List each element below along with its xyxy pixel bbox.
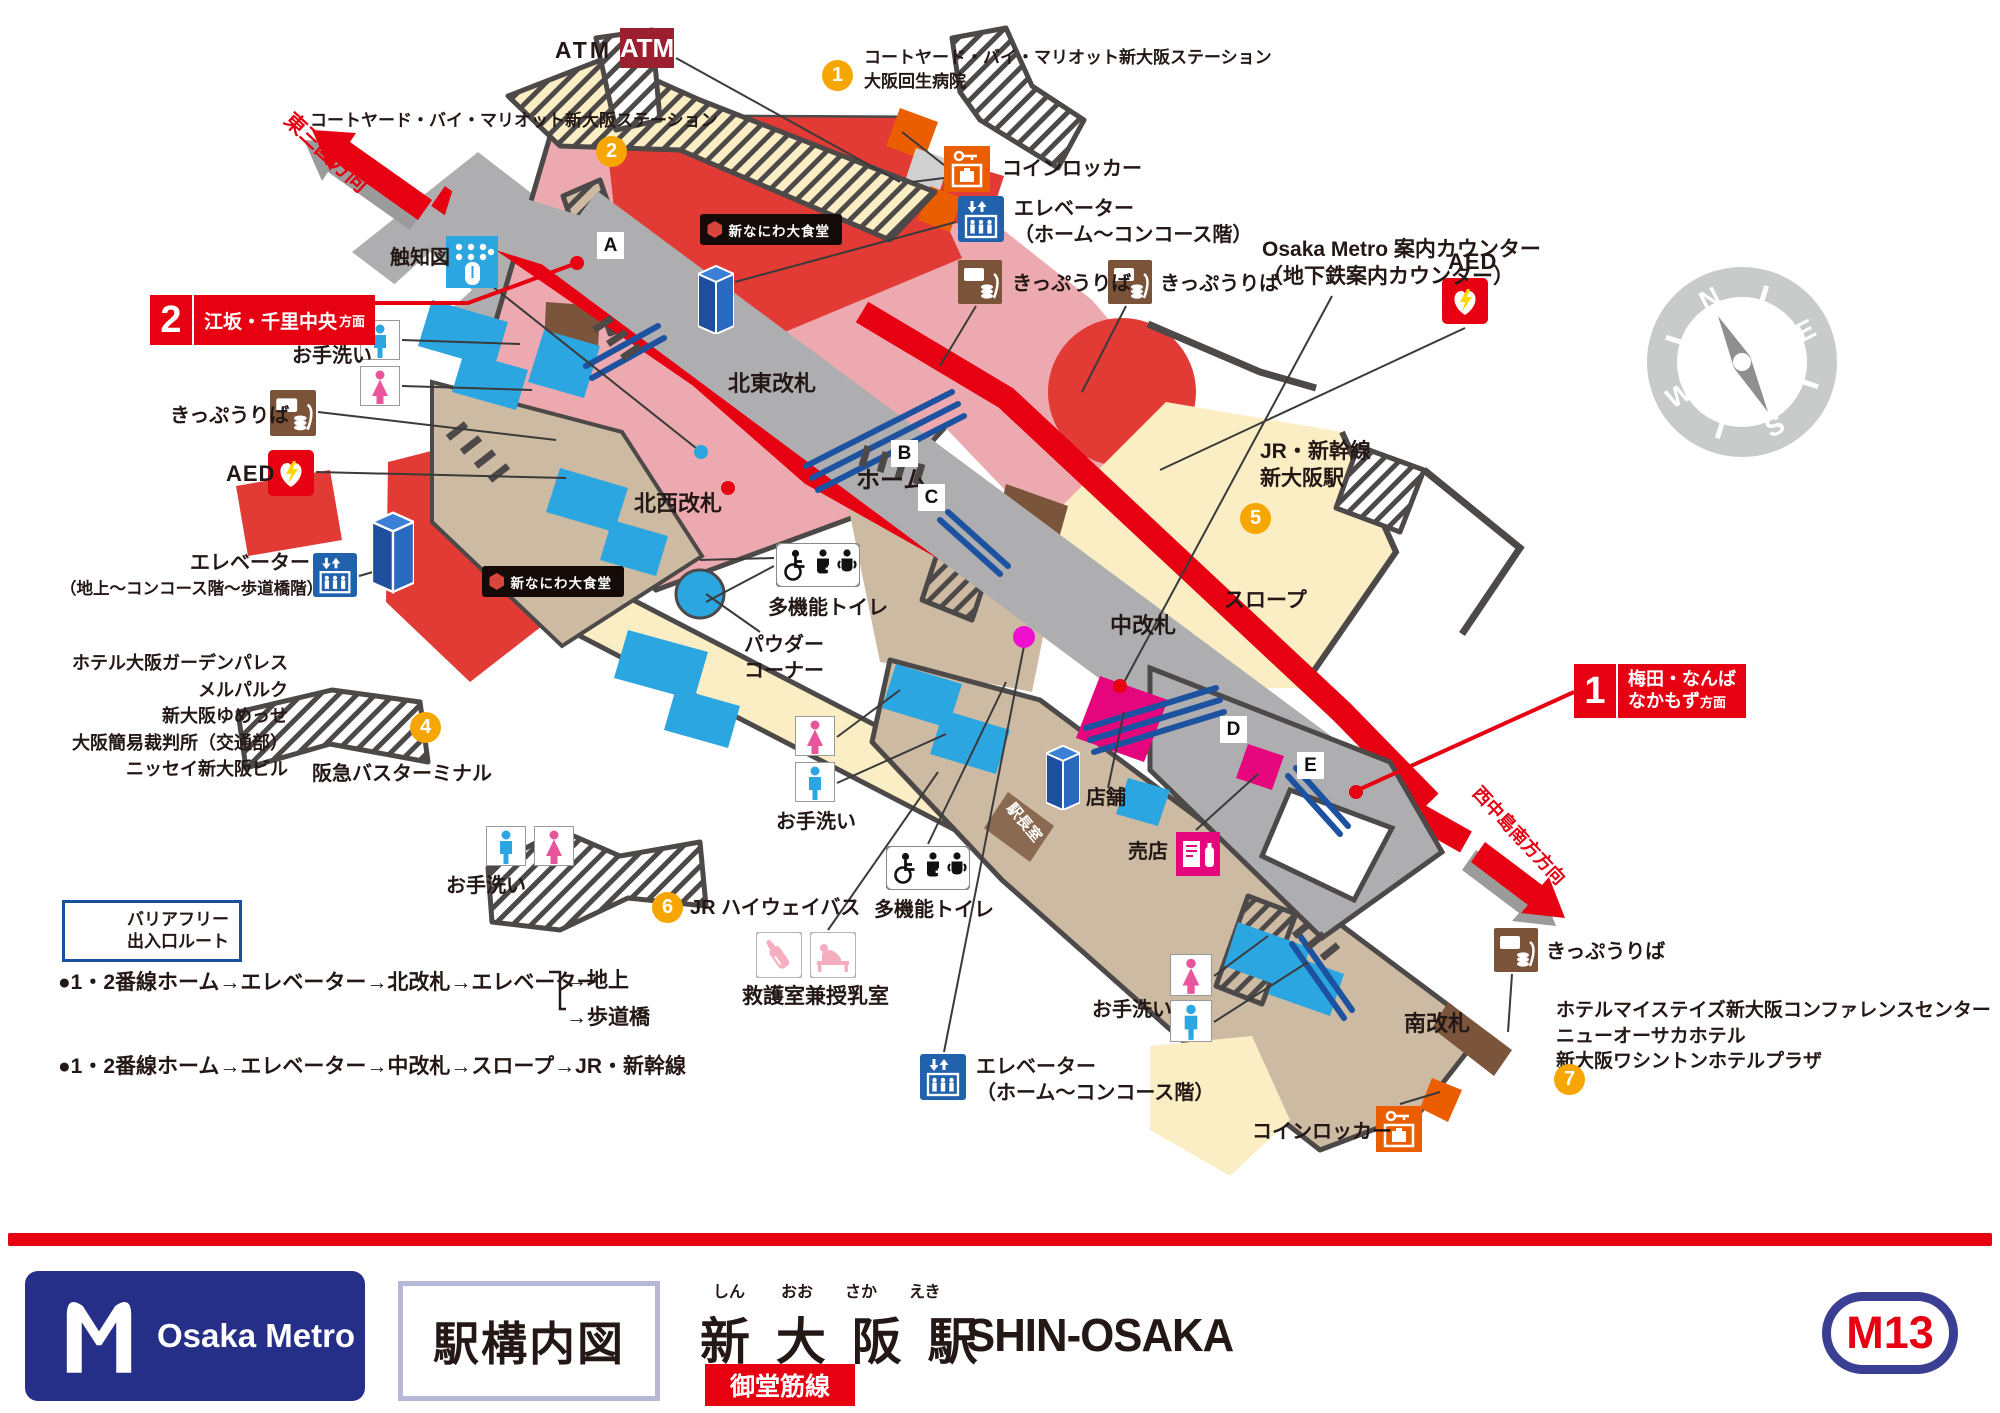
slope-label: スロープ — [1224, 588, 1307, 614]
hotels-se-list: ホテルマイステイズ新大阪コンファレンスセンター ニューオーサカホテル 新大阪ワシ… — [1556, 998, 1991, 1075]
elevator-3d-west — [372, 513, 414, 592]
exit-marker-5: 5 — [1240, 503, 1271, 534]
toilet-label: お手洗い — [776, 810, 856, 835]
furigana: おお — [781, 1278, 813, 1302]
line-name-badge: 御堂筋線 — [705, 1364, 855, 1406]
ticket-label: きっぷうりば — [170, 404, 289, 429]
hotel-item: 大阪簡易裁判所（交通部） — [66, 730, 288, 757]
aed-label: AED — [226, 460, 275, 488]
exit-marker-2: 2 — [596, 136, 627, 167]
osaka-metro-logo: Osaka Metro — [25, 1271, 365, 1401]
exit-marker-4: 4 — [410, 712, 441, 743]
powder-line1: パウダー — [744, 632, 824, 658]
hotel-item: ニッセイ新大阪ビル — [66, 756, 288, 783]
multifunction-toilet-icon — [776, 543, 860, 587]
multifunction-toilet-label: 多機能トイレ — [768, 596, 888, 621]
elevator-top-line1: エレベーター — [1014, 196, 1252, 222]
toilet-label: お手洗い — [1092, 998, 1172, 1023]
powder-line2: コーナー — [744, 658, 824, 684]
footer-divider — [8, 1233, 1992, 1246]
barrier-free-route-2: ●1・2番線ホーム→エレベーター→中改札→スロープ→JR・新幹線 — [58, 1050, 686, 1080]
barrier-free-route-1: ●1・2番線ホーム→エレベーター→北改札→エレベーター — [58, 966, 597, 996]
elevator-icon — [958, 196, 1004, 242]
womens-toilet-icon — [534, 826, 574, 866]
exit-marker-7: 7 — [1554, 1064, 1585, 1095]
platform-1-dest2: なかもず — [1628, 691, 1700, 711]
exit-1-label: コートヤード・バイ・マリオット新大阪ステーション 大阪回生病院 — [864, 46, 1272, 94]
platform-2-banner: 2 江坂・千里中央 方面 — [150, 295, 375, 345]
hotel-item: 新大阪ワシントンホテルプラザ — [1556, 1049, 1991, 1075]
jr-highway-bus-label: JR ハイウェイバス — [690, 896, 860, 921]
barrier-free-line2: 出入口ルート — [127, 931, 229, 953]
toilet-label: お手洗い — [446, 874, 526, 899]
nursing-bottle-icon — [756, 932, 802, 978]
womens-toilet-icon — [1170, 954, 1212, 996]
platform-badge-b: B — [891, 440, 918, 467]
info-counter-label: Osaka Metro 案内カウンター （地下鉄案内カウンター） — [1262, 236, 1541, 290]
first-aid-nursing-label: 救護室兼授乳室 — [742, 984, 889, 1010]
elevator-west-line2: （地上～コンコース階～歩道橋階） — [60, 576, 310, 602]
route-1-branch-ground: →地上 — [566, 964, 629, 994]
atm-badge: ATM — [620, 28, 674, 68]
gate-south-label: 南改札 — [1404, 1010, 1470, 1038]
exit-marker-6: 6 — [652, 892, 683, 923]
hotel-item: 新大阪ゆめっせ — [66, 703, 288, 730]
platform-badge-a: A — [597, 232, 624, 259]
kiosk-icon — [1176, 832, 1220, 876]
nursing-room-icon — [810, 932, 856, 978]
gate-middle-label: 中改札 — [1110, 612, 1176, 640]
jr-line1: JR・新幹線 — [1260, 438, 1371, 465]
ticket-label: きっぷうりば — [1546, 940, 1665, 965]
furigana: しん — [713, 1278, 745, 1302]
elevator-bottom-label: エレベーター （ホーム～コンコース階） — [976, 1054, 1214, 1106]
furigana: えき — [909, 1278, 941, 1302]
brand-name: Osaka Metro — [157, 1317, 355, 1355]
ticket-machine-icon — [1494, 928, 1538, 972]
barrier-free-line1: バリアフリー — [127, 909, 229, 931]
mens-toilet-icon — [1170, 1000, 1212, 1042]
elevator-bottom-line1: エレベーター — [976, 1054, 1214, 1080]
hotel-item: ホテル大阪ガーデンパレス — [66, 650, 288, 677]
elevator-west-label: エレベーター （地上～コンコース階～歩道橋階） — [60, 550, 310, 602]
restaurant-name: 新なにわ大食堂 — [728, 220, 830, 240]
exit-1-line1: コートヤード・バイ・マリオット新大阪ステーション — [864, 46, 1272, 70]
platform-1-suffix: 方面 — [1700, 695, 1726, 710]
platform-1-banner: 1 梅田・なんば なかもず方面 — [1574, 664, 1746, 718]
elevator-west-line1: エレベーター — [60, 550, 310, 576]
platform-badge-e: E — [1297, 752, 1324, 779]
hotel-item: ホテルマイステイズ新大阪コンファレンスセンター — [1556, 998, 1991, 1024]
barrier-free-legend: バリアフリー 出入口ルート — [62, 900, 242, 962]
station-code-badge: M13 — [1822, 1292, 1958, 1374]
elevator-bottom-line2: （ホーム～コンコース階） — [976, 1080, 1214, 1106]
platform-badge-d: D — [1220, 716, 1247, 743]
tactile-map-label: 触知図 — [390, 246, 450, 271]
jr-line2: 新大阪駅 — [1260, 465, 1371, 492]
powder-corner-label: パウダー コーナー — [744, 632, 824, 684]
jr-shinkansen-label: JR・新幹線 新大阪駅 — [1260, 438, 1371, 492]
womens-toilet-icon — [795, 716, 835, 756]
restaurant-badge: ⬢ 新なにわ大食堂 — [700, 214, 842, 245]
hankyu-bus-label: 阪急バスターミナル — [312, 762, 492, 787]
gate-northeast-label: 北東改札 — [728, 370, 816, 398]
route-1-branch-bridge: →歩道橋 — [566, 1001, 650, 1031]
elevator-icon — [920, 1054, 966, 1100]
station-name-en: SHIN-OSAKA — [966, 1308, 1233, 1362]
platform-1-number: 1 — [1574, 664, 1618, 718]
ticket-machine-icon — [958, 260, 1002, 304]
exit-1-line2: 大阪回生病院 — [864, 70, 1272, 94]
platform-1-dest1: 梅田・なんば — [1628, 668, 1736, 690]
restaurant-badge: ⬢ 新なにわ大食堂 — [482, 566, 624, 597]
hotel-item: ニューオーサカホテル — [1556, 1024, 1991, 1050]
platform-2-number: 2 — [150, 295, 194, 345]
restaurant-logo-icon: ⬢ — [488, 572, 505, 592]
aed-label: AED — [1448, 248, 1497, 276]
coin-locker-icon — [944, 146, 990, 192]
info-counter-line1: Osaka Metro 案内カウンター — [1262, 236, 1541, 263]
barrier-free-text: バリアフリー 出入口ルート — [127, 909, 229, 953]
platform-badge-c: C — [918, 484, 945, 511]
osaka-metro-m-icon — [53, 1290, 145, 1382]
hotels-west-list: ホテル大阪ガーデンパレス メルパルク 新大阪ゆめっせ 大阪簡易裁判所（交通部） … — [66, 650, 288, 783]
atm-label: ATM — [520, 36, 612, 65]
womens-toilet-icon — [360, 366, 400, 406]
multifunction-toilet-icon — [886, 846, 970, 890]
tactile-map-icon — [446, 236, 498, 288]
furigana: さか — [845, 1278, 877, 1302]
platform-2-destination: 江坂・千里中央 — [204, 307, 337, 334]
gate-northwest-label: 北西改札 — [634, 490, 722, 518]
platform-2-suffix: 方面 — [339, 311, 365, 330]
elevator-top-line2: （ホーム～コンコース階） — [1014, 222, 1252, 248]
compass-icon: N E S W — [1628, 249, 1852, 477]
coin-locker-label: コインロッカー — [1252, 1120, 1392, 1145]
platform-label: ホーム — [856, 466, 927, 496]
exit-2-label: コートヤード・バイ・マリオット新大阪ステーション — [310, 110, 718, 131]
elevator-top-label: エレベーター （ホーム～コンコース階） — [1014, 196, 1252, 248]
hotel-item: メルパルク — [66, 677, 288, 704]
exit-marker-1: 1 — [822, 60, 853, 91]
ticket-label: きっぷうりば — [1012, 272, 1131, 297]
kiosk-label: 売店 — [1128, 840, 1168, 865]
info-counter-line2: （地下鉄案内カウンター） — [1262, 263, 1541, 290]
mens-toilet-icon — [486, 826, 526, 866]
station-map-page: N E S W ATM ATM 1 コートヤード・バイ・マリオット新大阪ステーシ… — [0, 0, 2000, 1413]
elevator-3d-northeast — [698, 266, 734, 334]
shop-label: 店舗 — [1086, 786, 1126, 811]
toilet-label: お手洗い — [292, 344, 372, 369]
map-title-box: 駅構内図 — [398, 1281, 660, 1401]
coin-locker-label: コインロッカー — [1002, 157, 1142, 182]
elevator-3d-middle — [1046, 746, 1080, 810]
mens-toilet-icon — [795, 762, 835, 802]
restaurant-name: 新なにわ大食堂 — [510, 572, 612, 592]
multifunction-toilet-label: 多機能トイレ — [874, 898, 994, 923]
restaurant-logo-icon: ⬢ — [706, 220, 723, 240]
